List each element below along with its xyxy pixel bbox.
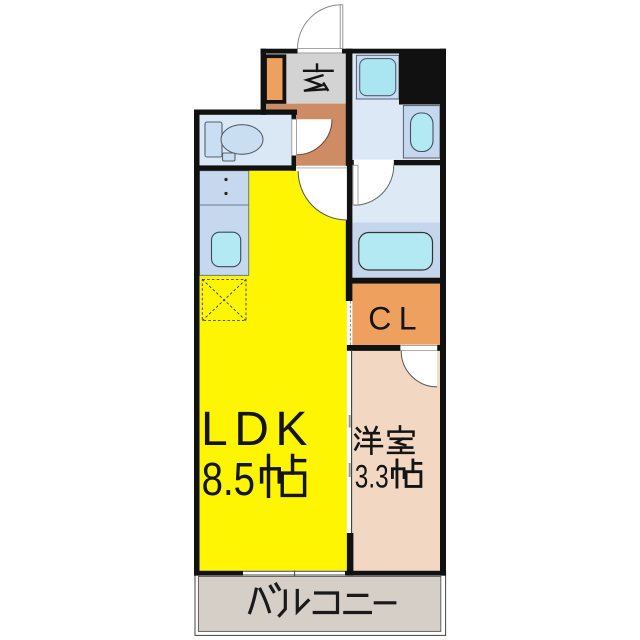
svg-text:LDK: LDK (201, 403, 314, 456)
svg-text:8.5: 8.5 (202, 454, 255, 505)
svg-text:CL: CL (368, 300, 424, 336)
svg-text:3.3: 3.3 (355, 459, 389, 495)
